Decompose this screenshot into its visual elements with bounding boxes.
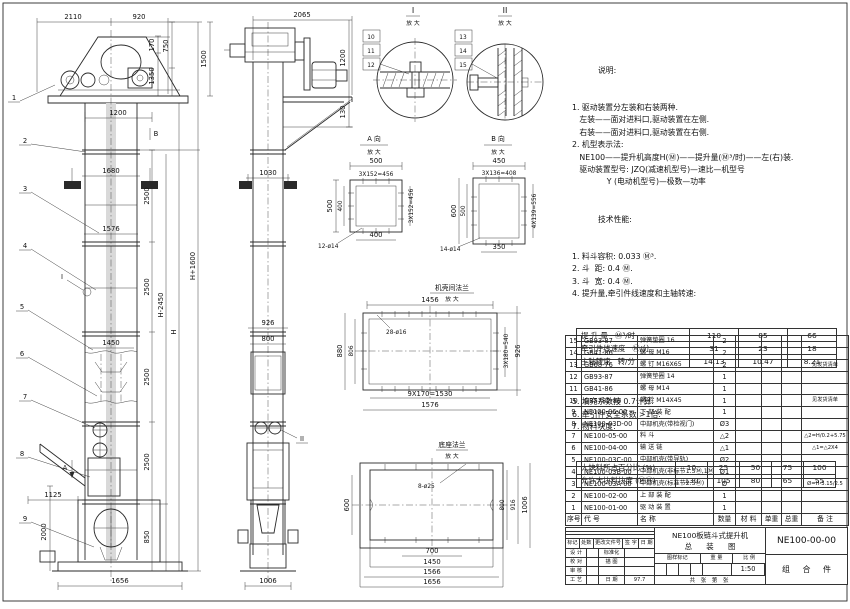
signature-row: 设 计标准化 [566,549,654,558]
stamp-boxes-row: 1:50 [655,564,765,576]
dim-label: H-2450 [157,293,165,318]
balloon-number: 8 [20,450,24,458]
dim-label: 1200 [109,109,126,117]
dim-label: 1030 [259,169,276,177]
table-row: 5NE100-03C-00中部机壳(带导轨)Ø2 [566,454,849,466]
dim-label: 800 [262,335,275,343]
stamp-header-row: 图样标记 重 量 比 例 [655,554,765,564]
balloon-number: 12 [367,63,375,69]
balloon-number: 15 [459,63,467,69]
table-row: 10GB5782-86螺 栓 M14X451见发货清单 [566,395,849,407]
dim-label: 1125 [44,491,61,499]
balloon-number: 3 [23,185,27,193]
view-title: A 向 [367,134,381,143]
view-subtitle: 放 大 [445,452,459,460]
balloon-number: 6 [20,350,24,358]
front-view-dimensions: 2110 920 170 1350 750 1500 1200 1680 157… [28,13,213,590]
table-row: 1NE100-01-00驱 动 装 置1 [566,502,849,514]
text-line: 左装——面对进料口,驱动装置在左侧. [572,114,848,126]
bom-table: 15GB93-87弹簧垫圈 16214GB41-86螺 母 M16213GB68… [565,335,848,526]
dim-label: 350 [493,243,506,251]
section-mark: B [154,130,159,138]
side-view [224,22,352,583]
dim-label: 806 [349,345,355,356]
dim-label: 450 [493,157,506,165]
detail-view-1: I 放 大 10 11 12 [363,6,457,122]
dim-label: 2500 [143,368,151,385]
revision-header-row: 标记 处数 更改文件号 签 字 日 期 [566,539,654,549]
view-title: B 向 [491,134,505,143]
view-a-detail: A 向 放 大 500 3X152=456 500 400 3X152=456 … [318,134,415,250]
dim-label: 1576 [421,401,438,409]
table-row: 3NE100-03A-00中部机壳(标准节2.5Ⓜ)ØØ=H-3.15/2.5 [566,478,849,490]
text-line: 2. 斗 距: 0.4 Ⓜ. [572,263,848,275]
dim-label: 600 [343,499,351,512]
table-row: 8NE100-03D-00中部机壳(带检视门)Ø3 [566,419,849,431]
dim-label: 400 [338,200,344,211]
dim-label: 9X170=1530 [408,390,453,398]
bom-header-row: 序号 代 号 名 称 数量 材 料 单重 总重 备 注 [566,514,849,526]
title-block: 标记 处数 更改文件号 签 字 日 期 设 计标准化 校 对描 图 审 核 工 … [565,527,848,585]
text-line: 1. 驱动装置分左装和右装两种. [572,102,848,114]
tech-lines-before: 1. 料斗容积: 0.033 Ⓜ³.2. 斗 距: 0.4 Ⓜ.3. 斗 宽: … [572,251,848,301]
signature-row: 校 对描 图 [566,558,654,567]
hole-callout: 8-ø25 [418,484,435,490]
balloon-number: 5 [20,303,24,311]
balloon-number: 10 [367,35,375,41]
view-subtitle: 放 大 [367,148,381,156]
dim-label: 1450 [102,339,119,347]
balloon-number: 7 [23,393,27,401]
dim-label: 600 [450,205,458,218]
view-subtitle: 放 大 [445,295,459,303]
hole-callout: 14-ø14 [440,247,461,253]
hole-callout: 28-ø16 [386,330,407,336]
sheet-count: 共 张 第 张 [655,576,765,584]
dim-label: 920 [133,13,146,21]
dim-label: 916 [511,499,517,510]
title-block-right: NE100-00-00 组 合 件 [766,528,847,584]
view-b-detail: B 向 放 大 450 3X136=408 600 500 4X139=556 … [440,134,538,253]
balloon-number: 4 [23,242,27,250]
tech-title: 技术性能: [572,214,848,226]
dim-label: 1456 [421,296,438,304]
dim-label: 2500 [143,187,151,204]
dim-label: 1576 [102,225,119,233]
detail-subtitle: 放 大 [406,19,420,27]
signature-row: 审 核 [566,567,654,576]
balloon-number: 11 [367,49,375,55]
dim-label: 2065 [293,11,310,19]
scale-value: 1:50 [731,564,765,575]
text-line: Y (电动机型号)—极数—功率 [572,176,848,188]
dim-label: 2500 [143,278,151,295]
dim-label: 1680 [102,167,119,175]
detail-title: I [412,6,414,15]
dim-label: 1006 [521,496,529,513]
title-block-revisions: 标记 处数 更改文件号 签 字 日 期 设 计标准化 校 对描 图 审 核 工 … [566,528,654,584]
dim-label: 1656 [111,577,128,585]
hole-callout: 12-ø14 [318,244,339,250]
dim-label: 880 [336,345,344,358]
section-mark: I [61,273,63,281]
notes-title: 说明: [572,65,848,77]
table-row: 15GB93-87弹簧垫圈 162 [566,336,849,348]
dim-label: 850 [143,531,151,544]
balloon-number: 9 [23,515,27,523]
dim-label: 170 [148,39,156,52]
dim-label: 2500 [143,453,151,470]
table-row: 13GB68-76螺 钉 M16X652见发货清单 [566,359,849,371]
table-row: 9NE100-06-00下 部 装 配1 [566,407,849,419]
casing-flange-detail: 机壳间法兰 放 大 1456 28-ø16 880 806 3X180=540 … [336,283,522,410]
detail-title: II [503,6,508,15]
dim-label: 1450 [423,558,440,566]
dim-label: 500 [370,157,383,165]
view-subtitle: 放 大 [491,148,505,156]
drawing-sheet: 2110 920 170 1350 750 1500 1200 1680 157… [0,0,850,609]
dim-label: H [170,329,178,334]
text-line: 2. 机型表示法: [572,139,848,151]
text-line: NE100——提升机高度H(Ⓜ)——提升量(Ⓜ³/时)——左(右)装. [572,152,848,164]
detail-view-2: II 放 大 13 14 15 [455,6,543,120]
dim-label: 4X139=556 [532,193,538,228]
view-title: 底座法兰 [438,440,465,449]
view-title: 机壳间法兰 [435,283,469,292]
dim-label: 926 [262,319,275,327]
dim-label: 1656 [423,578,440,586]
title-block-center: NE100板链斗式提升机 总 装 图 图样标记 重 量 比 例 1:50 共 张… [654,528,766,584]
dim-label: 1200 [339,49,347,66]
notes-lines: 1. 驱动装置分左装和右装两种. 左装——面对进料口,驱动装置在左侧. 右装——… [572,102,848,189]
text-line: 1. 料斗容积: 0.033 Ⓜ³. [572,251,848,263]
table-row: 6NE100-04-00输 送 链△1△1=△2X4 [566,443,849,455]
drawing-title: NE100板链斗式提升机 [655,528,765,541]
dim-label: 3X136=408 [482,171,517,177]
dim-label: 3X180=540 [504,333,510,368]
signature-row: 工 艺日 期97.7 [566,576,654,584]
table-row: 12GB93-87弹簧垫圈 141 [566,371,849,383]
dim-label: 1566 [423,568,440,576]
balloon-number: 1 [12,94,16,102]
text-line: 驱动装置型号: JZQ(减速机型号)—速比—机型号 [572,164,848,176]
dim-label: 3X152=456 [359,172,394,178]
balloon-number: 2 [23,137,27,145]
dim-label: 3X152=456 [409,188,415,223]
text-line: 3. 斗 宽: 0.4 Ⓜ. [572,276,848,288]
dim-label: 1350 [148,67,156,84]
drawing-number: NE100-00-00 [766,528,847,555]
balloon-number: 13 [459,35,467,41]
balloon-number: 14 [459,49,467,55]
section-mark: II [300,435,304,443]
side-view-dimensions: 2065 1200 130 1030 926 800 1006 II [245,11,353,590]
table-row: 7NE100-05-00料 斗△2△2=H/0.2+5.75 [566,431,849,443]
section-mark: A [63,464,68,472]
dim-label: 400 [370,231,383,239]
dim-label: 2110 [64,13,81,21]
dim-label: 750 [162,40,170,53]
part-kind: 组 合 件 [766,555,847,584]
table-row: 2NE100-02-00上 部 装 配1 [566,490,849,502]
text-line: 右装——面对进料口,驱动装置在右侧. [572,127,848,139]
drawing-subtitle: 总 装 图 [655,541,765,553]
dim-label: 700 [426,547,439,555]
dim-label: 800 [500,499,506,510]
table-row: 14GB41-86螺 母 M162 [566,347,849,359]
table-row: 11GB41-86螺 母 M141 [566,383,849,395]
dim-label: 1500 [200,50,208,67]
dim-label: 1006 [259,577,276,585]
dim-label: 500 [326,200,334,213]
dim-label: 500 [461,205,467,216]
text-line: 4. 提升量,牵引件线速度和主轴转速: [572,288,848,300]
dim-label: 926 [514,345,522,358]
table-row: 4NE100-03B-00中部机壳(非标节1.5Ⓜ,1Ⓜ)Ø1 [566,466,849,478]
base-flange-detail: 底座法兰 放 大 8-ø25 600 800 916 1006 700 1450… [343,440,530,587]
dim-label: 130 [339,106,347,119]
dim-label: H+1600 [189,252,197,280]
detail-subtitle: 放 大 [498,19,512,27]
